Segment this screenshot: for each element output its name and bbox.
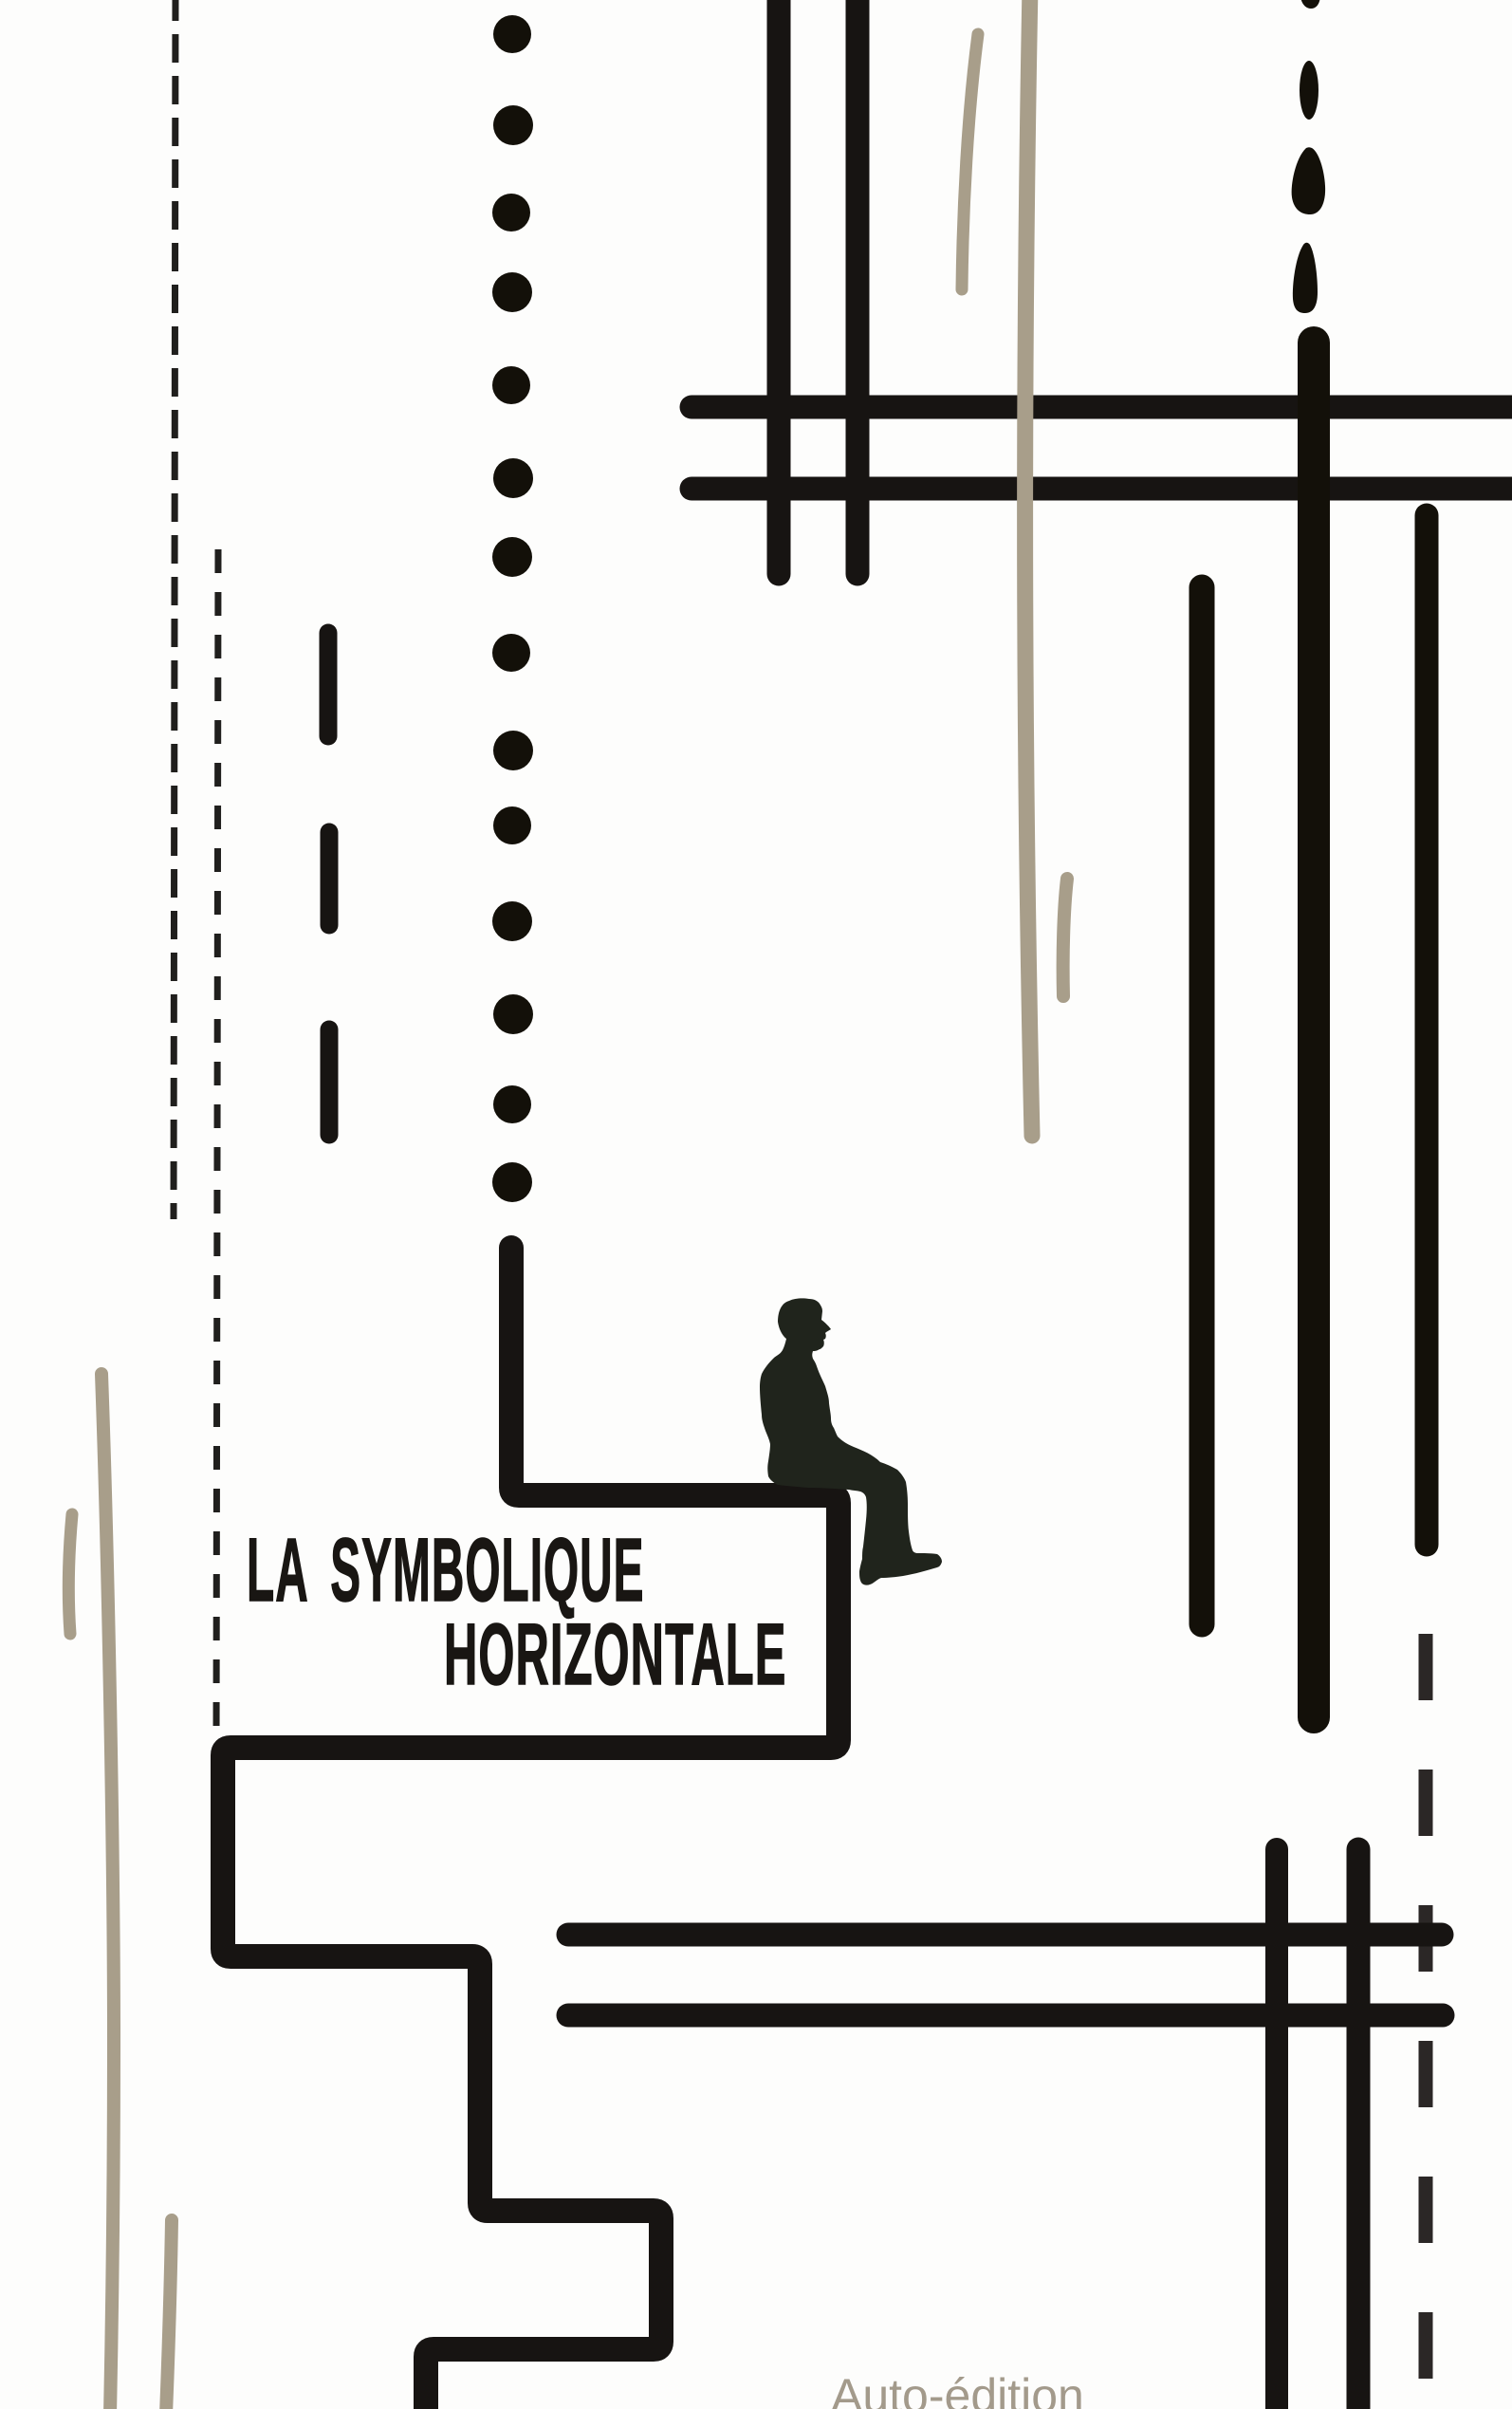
svg-text:HORIZONTALE: HORIZONTALE bbox=[444, 1604, 786, 1703]
svg-text:Auto-édition: Auto-édition bbox=[831, 2369, 1084, 2409]
